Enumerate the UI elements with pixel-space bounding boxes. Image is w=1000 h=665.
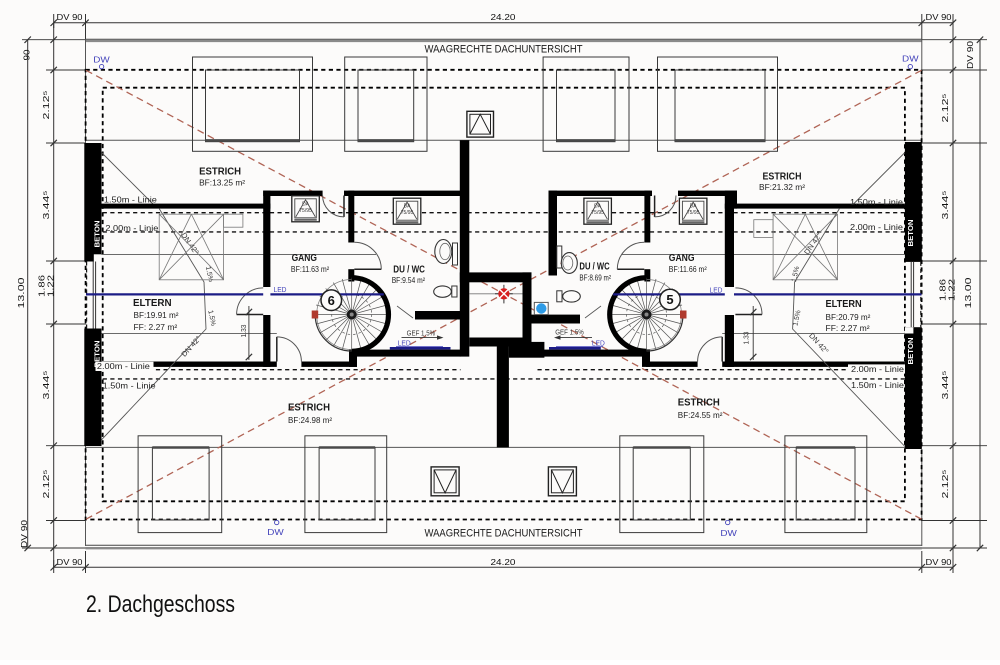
svg-text:BF:9.54 m²: BF:9.54 m² [392,275,425,285]
svg-text:1.50m - Linie: 1.50m - Linie [104,194,157,204]
svg-text:24.20: 24.20 [491,12,516,22]
svg-text:BF:20.79 m²: BF:20.79 m² [826,312,871,322]
svg-text:BETON: BETON [95,221,102,248]
svg-text:13.00: 13.00 [16,277,26,308]
svg-text:BETON: BETON [908,338,915,365]
svg-text:2.12⁵: 2.12⁵ [940,94,950,123]
svg-text:1.22: 1.22 [948,278,957,301]
svg-text:DV 90: DV 90 [57,557,83,567]
svg-text:2. Dachgeschoss: 2. Dachgeschoss [86,591,235,618]
svg-text:75/95: 75/95 [401,210,414,216]
svg-text:ESTRICH: ESTRICH [678,397,720,409]
svg-text:3.44⁵: 3.44⁵ [41,191,51,220]
svg-text:BF:8.69 m²: BF:8.69 m² [579,272,611,282]
svg-text:BF:24.98 m²: BF:24.98 m² [288,415,332,425]
svg-text:DW: DW [902,54,919,64]
svg-text:GEF 1.5%: GEF 1.5% [555,330,584,337]
svg-text:WAAGRECHTE DACHUNTERSICHT: WAAGRECHTE DACHUNTERSICHT [425,43,583,55]
svg-text:ELTERN: ELTERN [133,298,172,309]
svg-text:2.00m - Linie: 2.00m - Linie [97,361,150,371]
svg-text:BETON: BETON [908,220,915,247]
svg-text:BF:21.32 m²: BF:21.32 m² [759,182,805,192]
svg-text:1.50m - Linie: 1.50m - Linie [103,381,156,391]
svg-text:GEF 1.5%: GEF 1.5% [407,330,436,337]
svg-text:GANG: GANG [669,253,695,264]
svg-text:DW: DW [93,54,110,64]
svg-text:BF:13.25 m²: BF:13.25 m² [199,178,245,188]
svg-text:LED: LED [274,287,287,294]
svg-text:24.20: 24.20 [491,557,516,567]
svg-text:75/95: 75/95 [687,210,700,216]
svg-text:DA: DA [690,204,698,210]
svg-text:ESTRICH: ESTRICH [763,171,802,182]
svg-text:2.00m - Linie: 2.00m - Linie [850,222,903,232]
svg-text:GANG: GANG [292,253,318,264]
svg-text:2.00m - Linie: 2.00m - Linie [851,364,904,374]
svg-text:2.12⁵: 2.12⁵ [940,470,950,499]
svg-text:WAAGRECHTE DACHUNTERSICHT: WAAGRECHTE DACHUNTERSICHT [425,527,583,539]
svg-text:1.50m - Linie: 1.50m - Linie [850,197,903,207]
svg-text:1.33: 1.33 [742,332,751,345]
svg-text:5: 5 [666,292,673,307]
svg-text:1.50m - Linie: 1.50m - Linie [851,380,904,390]
svg-text:75/95: 75/95 [591,210,604,216]
svg-text:BF:24.55 m²: BF:24.55 m² [678,410,723,420]
svg-text:1.33: 1.33 [239,325,248,338]
svg-text:DV 90: DV 90 [926,557,952,567]
svg-text:2.12⁵: 2.12⁵ [41,470,51,499]
svg-text:3.44⁵: 3.44⁵ [940,191,950,220]
svg-text:DA: DA [594,204,602,210]
svg-text:DU / WC: DU / WC [579,262,609,273]
svg-text:90: 90 [22,49,32,60]
svg-text:75/95: 75/95 [299,208,312,214]
svg-text:DV 90: DV 90 [20,519,29,548]
svg-text:FF: 2.27 m²: FF: 2.27 m² [826,323,870,333]
svg-text:DV 90: DV 90 [926,12,952,22]
svg-text:DV 90: DV 90 [966,40,975,69]
svg-text:6: 6 [328,293,335,308]
svg-text:ESTRICH: ESTRICH [288,402,330,414]
svg-text:DV 90: DV 90 [57,12,83,22]
svg-text:DW: DW [267,527,284,537]
svg-text:DA: DA [302,201,310,207]
svg-text:13.00: 13.00 [963,277,973,308]
svg-text:ELTERN: ELTERN [826,299,862,310]
svg-text:1.22: 1.22 [47,274,56,297]
svg-text:3.44⁵: 3.44⁵ [940,371,950,400]
svg-text:LED: LED [710,288,723,295]
svg-text:BF:11.63 m²: BF:11.63 m² [291,264,329,274]
svg-text:2.12⁵: 2.12⁵ [41,91,51,120]
svg-text:BF:19.91 m²: BF:19.91 m² [134,310,179,320]
svg-text:1.86: 1.86 [939,278,948,301]
svg-text:BF:11.66 m²: BF:11.66 m² [669,264,707,274]
svg-text:2.00m - Linie: 2.00m - Linie [105,223,158,233]
svg-text:1.86: 1.86 [38,274,47,297]
svg-text:ESTRICH: ESTRICH [199,167,241,178]
svg-text:3.44⁵: 3.44⁵ [41,371,51,400]
svg-text:DA: DA [404,204,412,210]
svg-text:DW: DW [720,528,737,538]
svg-text:FF: 2.27 m²: FF: 2.27 m² [134,322,178,332]
